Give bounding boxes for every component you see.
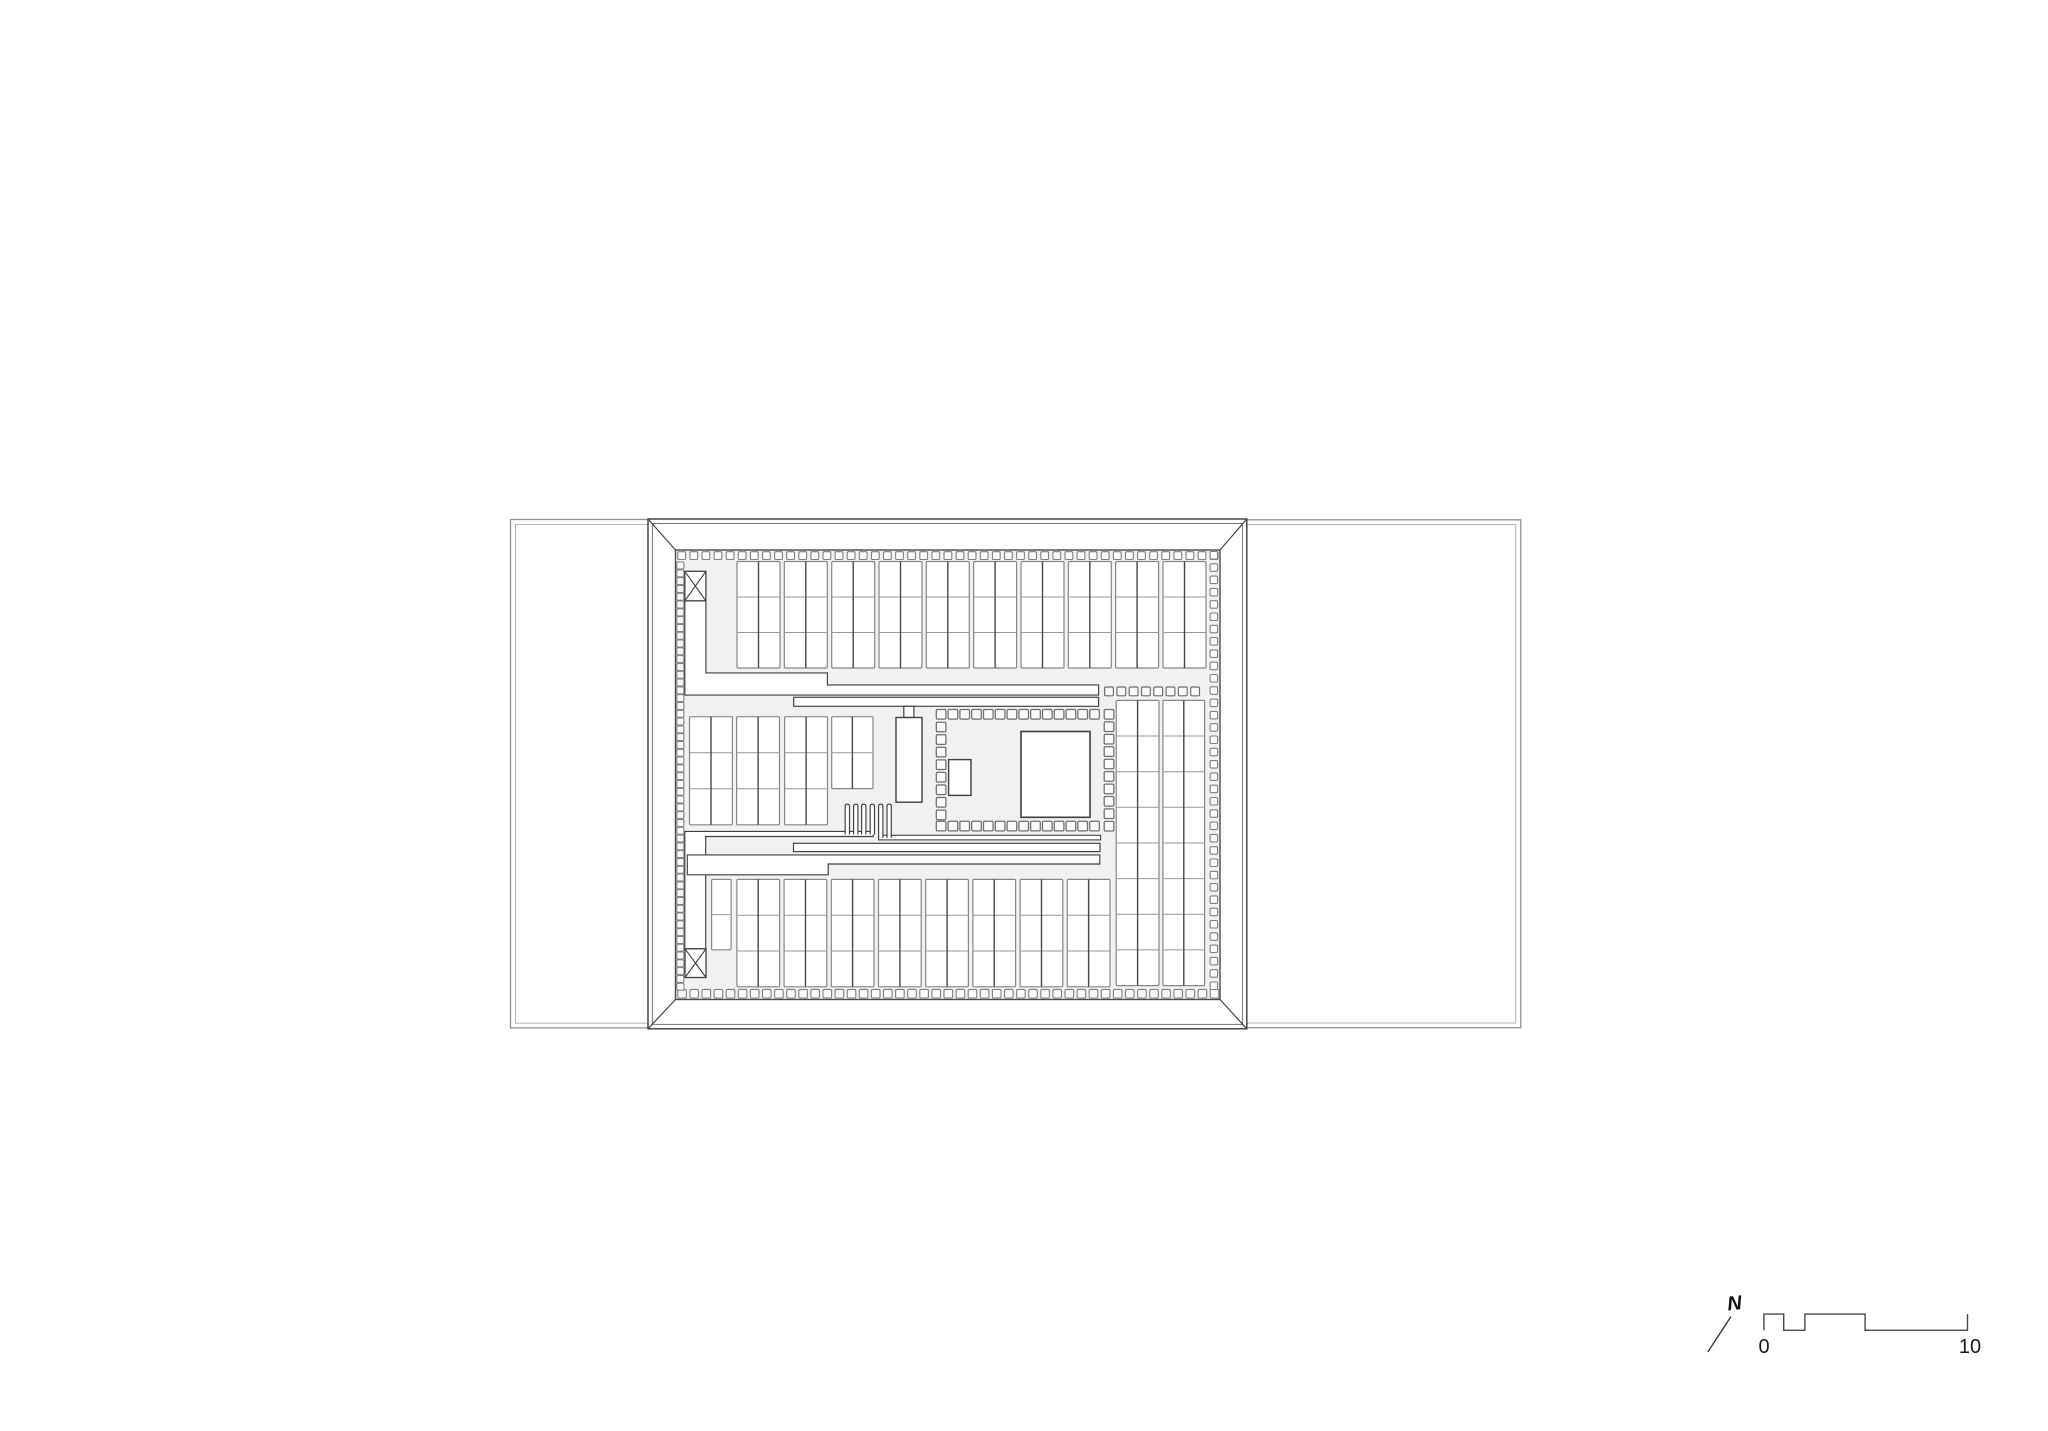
svg-text:0: 0 bbox=[1758, 1336, 1769, 1358]
svg-text:N: N bbox=[1726, 1292, 1743, 1315]
svg-text:10: 10 bbox=[1959, 1336, 1981, 1358]
